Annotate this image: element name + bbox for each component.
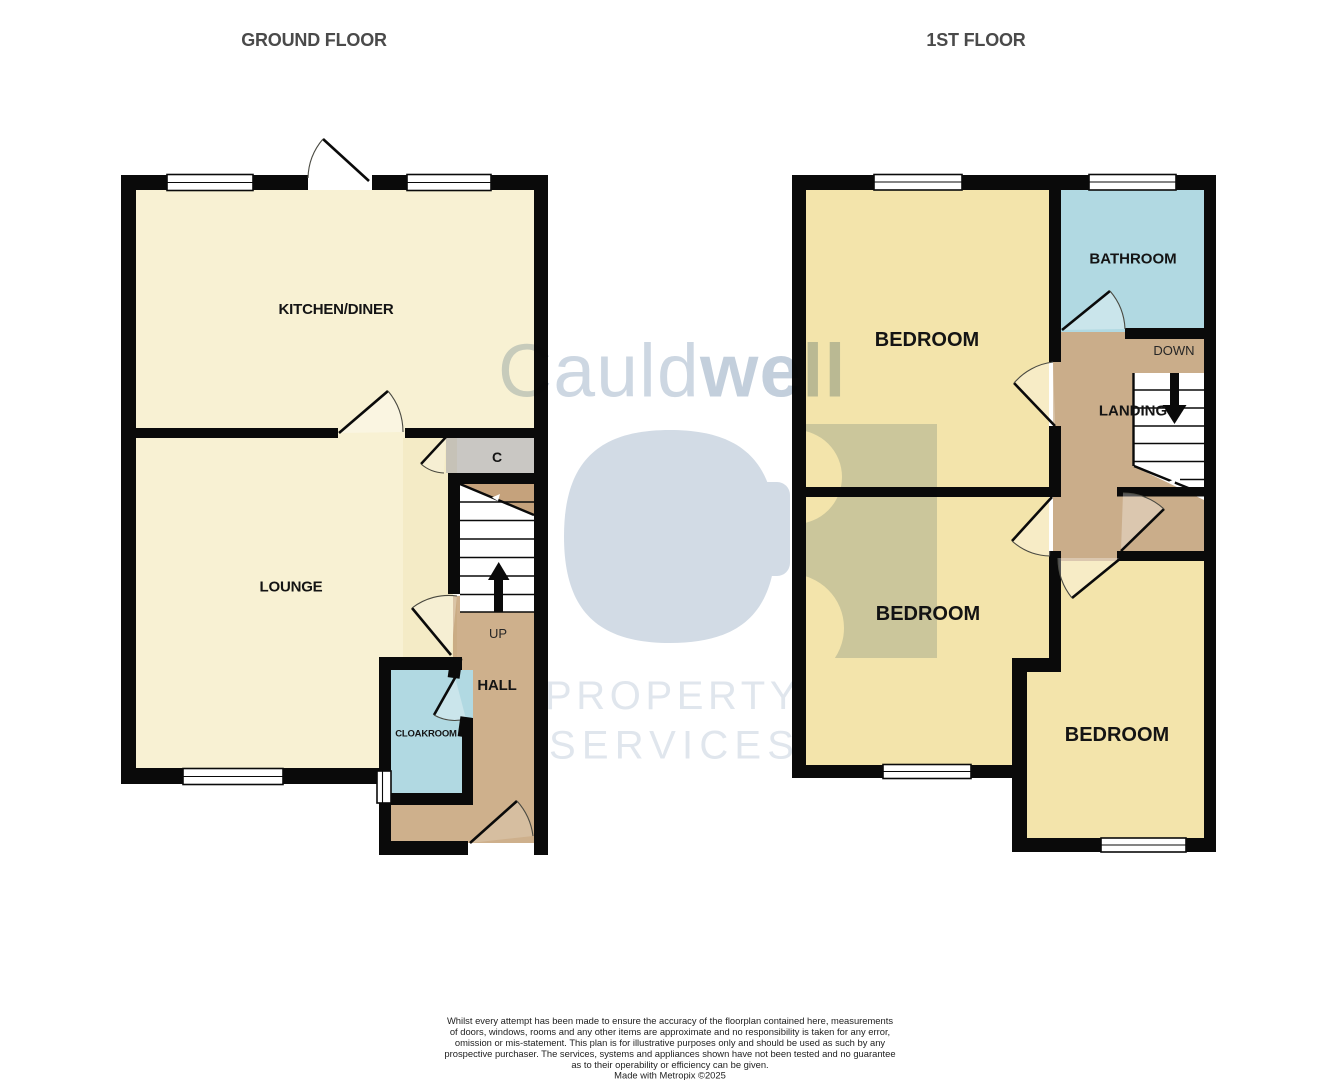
svg-text:Cauldwell: Cauldwell [498,329,847,413]
svg-text:KITCHEN/DINER: KITCHEN/DINER [279,301,394,318]
svg-text:HALL: HALL [477,677,516,694]
svg-text:BEDROOM: BEDROOM [875,329,979,351]
svg-text:CLOAKROOM: CLOAKROOM [395,729,457,740]
svg-text:Made with Metropix ©2025: Made with Metropix ©2025 [614,1070,726,1080]
svg-text:PROPERTY: PROPERTY [545,674,801,718]
svg-text:omission or mis-statement. Thi: omission or mis-statement. This plan is … [455,1037,886,1048]
svg-text:UP: UP [489,626,507,641]
svg-text:as to their operability or eff: as to their operability or efficiency ca… [571,1059,768,1070]
svg-text:DOWN: DOWN [1153,343,1194,358]
svg-text:C: C [492,449,502,465]
svg-text:of doors, windows, rooms and a: of doors, windows, rooms and any other i… [450,1026,890,1037]
svg-text:BEDROOM: BEDROOM [1065,724,1169,746]
svg-text:1ST FLOOR: 1ST FLOOR [926,30,1025,50]
svg-text:BATHROOM: BATHROOM [1089,251,1176,268]
svg-text:GROUND FLOOR: GROUND FLOOR [241,30,387,50]
svg-text:SERVICES: SERVICES [549,724,800,768]
svg-text:LOUNGE: LOUNGE [260,579,323,596]
svg-text:prospective purchaser. The ser: prospective purchaser. The services, sys… [444,1048,895,1059]
svg-text:LANDING: LANDING [1099,403,1167,420]
svg-text:Whilst every attempt has been: Whilst every attempt has been made to en… [447,1015,893,1026]
